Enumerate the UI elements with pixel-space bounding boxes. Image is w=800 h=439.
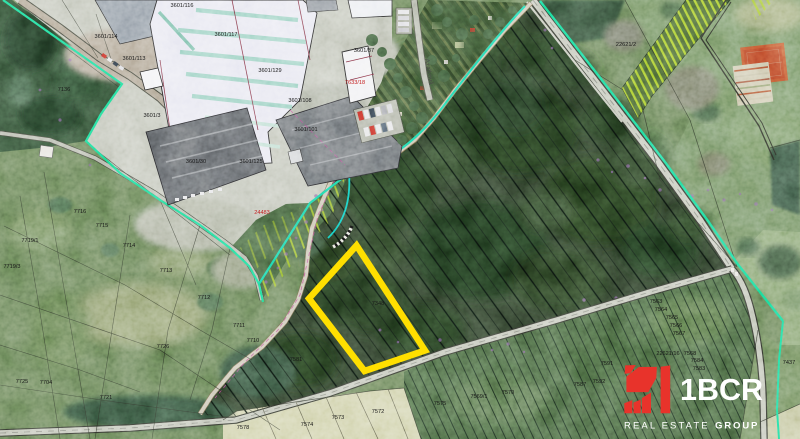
svg-text:7565: 7565 [666, 315, 678, 321]
svg-text:1BCR: 1BCR [680, 373, 763, 407]
svg-text:24483: 24483 [254, 210, 270, 216]
svg-text:7568: 7568 [684, 351, 696, 357]
svg-text:7563: 7563 [650, 299, 662, 305]
svg-text:3601/117: 3601/117 [215, 32, 238, 38]
svg-text:7713: 7713 [160, 268, 172, 274]
svg-text:3601/113: 3601/113 [123, 56, 146, 62]
svg-text:3601/114: 3601/114 [95, 34, 118, 40]
svg-text:7584: 7584 [691, 358, 703, 364]
svg-text:7710: 7710 [247, 338, 259, 344]
svg-text:7578: 7578 [237, 425, 249, 431]
svg-text:REAL ESTATE: REAL ESTATE [624, 421, 710, 432]
svg-text:7572: 7572 [372, 409, 384, 415]
svg-text:7715: 7715 [96, 223, 108, 229]
svg-text:7587: 7587 [574, 382, 586, 388]
svg-text:7714: 7714 [123, 243, 135, 249]
svg-text:7567: 7567 [673, 331, 685, 337]
svg-text:22621/16: 22621/16 [656, 351, 679, 357]
svg-text:7573: 7573 [332, 415, 344, 421]
svg-text:7575: 7575 [434, 401, 446, 407]
svg-text:7726: 7726 [157, 344, 169, 350]
svg-text:7437: 7437 [783, 360, 795, 366]
svg-text:3601/30: 3601/30 [186, 159, 206, 165]
svg-text:GROUP: GROUP [715, 421, 759, 432]
svg-text:3601/116: 3601/116 [171, 3, 194, 9]
svg-text:7591: 7591 [601, 361, 613, 367]
svg-text:7592: 7592 [593, 379, 605, 385]
svg-text:7569/1: 7569/1 [470, 394, 487, 400]
svg-text:22621/2: 22621/2 [616, 42, 636, 48]
svg-text:7725: 7725 [16, 379, 28, 385]
svg-text:3601/37: 3601/37 [354, 48, 374, 54]
svg-text:7716: 7716 [74, 209, 86, 215]
svg-text:7581: 7581 [290, 357, 302, 363]
svg-text:7566: 7566 [670, 323, 682, 329]
svg-text:3601/108: 3601/108 [288, 98, 311, 104]
svg-text:7348: 7348 [372, 301, 384, 307]
svg-text:7136: 7136 [58, 87, 70, 93]
svg-text:3601/3: 3601/3 [143, 113, 160, 119]
svg-text:7633/18: 7633/18 [345, 80, 365, 86]
svg-text:7574: 7574 [301, 422, 313, 428]
svg-text:7711: 7711 [233, 323, 245, 329]
svg-text:3601/129: 3601/129 [258, 68, 281, 74]
svg-text:3601/101: 3601/101 [294, 127, 317, 133]
svg-text:7704: 7704 [40, 380, 52, 386]
svg-text:7583: 7583 [693, 366, 705, 372]
svg-text:7564: 7564 [655, 307, 667, 313]
svg-text:7719/1: 7719/1 [21, 238, 38, 244]
svg-text:3601/125: 3601/125 [239, 159, 262, 165]
svg-text:7719/3: 7719/3 [3, 264, 20, 270]
svg-text:7712: 7712 [198, 295, 210, 301]
svg-text:7570: 7570 [502, 390, 514, 396]
svg-text:7721: 7721 [100, 395, 112, 401]
